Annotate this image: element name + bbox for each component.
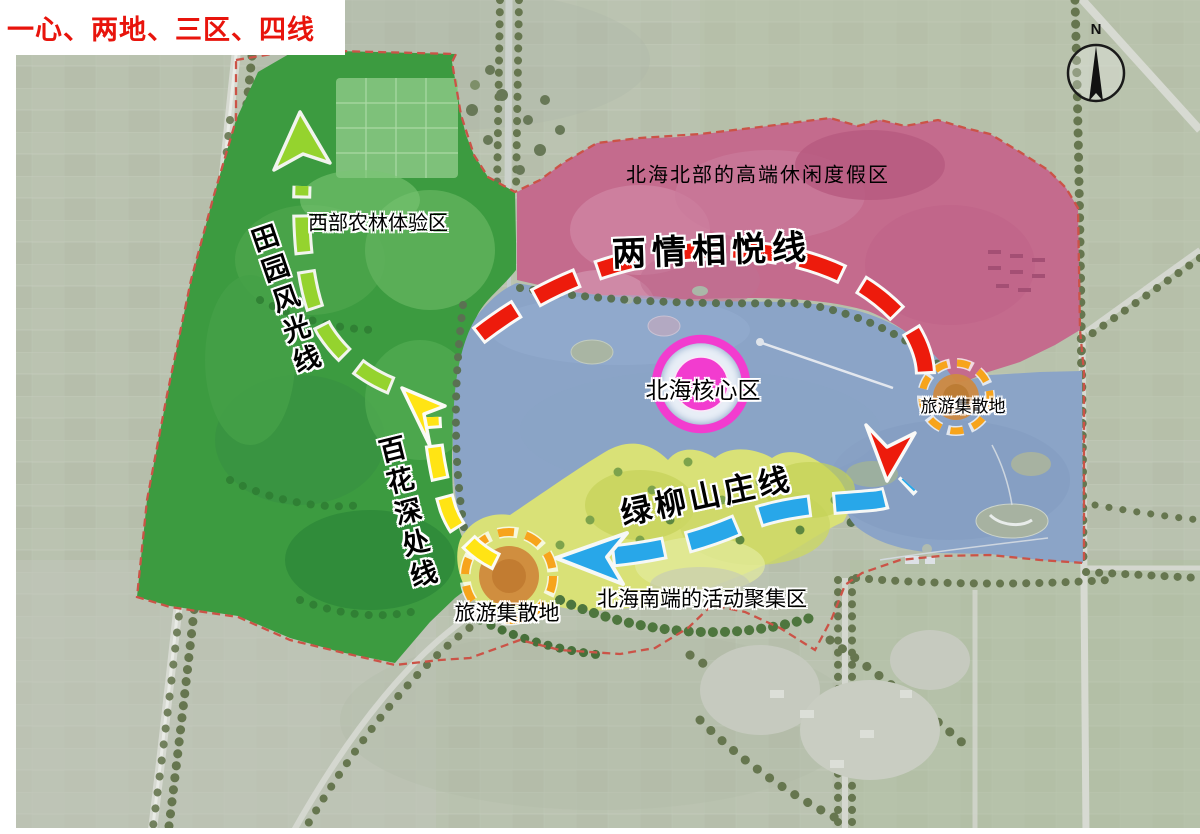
label-hub-west: 旅游集散地: [455, 603, 560, 625]
label-route-love: 两情相悦线: [611, 231, 812, 274]
label-core-zone: 北海核心区: [646, 378, 761, 402]
compass-north-label: N: [1091, 22, 1102, 38]
label-zone-south: 北海南端的活动聚集区: [597, 589, 807, 611]
title-box: 一心、两地、三区、四线: [0, 0, 345, 55]
label-zone-north: 北海北部的高端休闲度假区: [626, 166, 890, 187]
left-margin: [0, 55, 16, 834]
master-plan-map: [0, 0, 1200, 834]
master-plan-page: 一心、两地、三区、四线 北海北部的高端休闲度假区 西部农林体验区 北海南端的活动…: [0, 0, 1200, 834]
label-hub-east: 旅游集散地: [921, 398, 1006, 416]
label-zone-west: 西部农林体验区: [308, 214, 448, 235]
bottom-margin: [0, 828, 1200, 834]
page-title: 一心、两地、三区、四线: [0, 8, 315, 47]
north-compass: [1068, 45, 1124, 101]
